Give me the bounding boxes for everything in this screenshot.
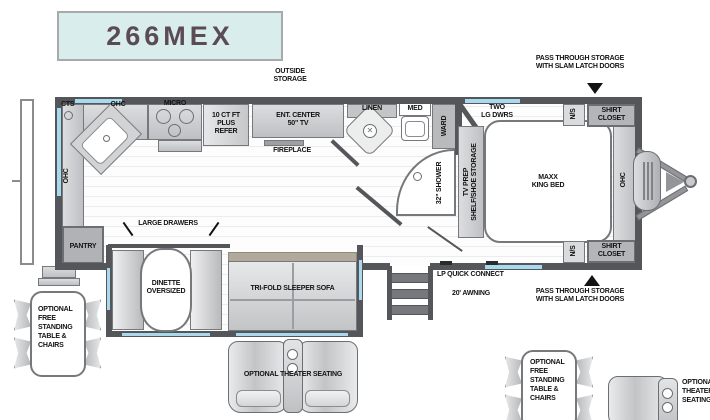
window-bedroom-top [465,99,520,103]
cts-icon [64,111,73,120]
pass-through-bottom-label: PASS THROUGH STORAGE WITH SLAM LATCH DOO… [524,288,636,304]
theater-label: OPTIONAL THEATER SEATING [228,371,358,379]
step-tread [391,305,429,315]
burner-icon [168,124,181,137]
tank-line [643,162,645,200]
fireplace-label: FIREPLACE [258,147,326,155]
kitchen-faucet [103,135,110,142]
entry-steps [387,266,433,320]
step-tread [391,289,429,299]
dinette-bench-right [190,250,222,330]
window-slideout-bottom-1 [122,333,210,336]
ent-center-label: ENT. CENTER 50" TV [254,112,342,128]
lp-quick-connect-label: LP QUICK CONNECT [437,271,517,279]
wall-top [55,97,642,104]
burner-icon [156,109,171,124]
sofa-cushion-divider [292,263,294,329]
pantry-label: PANTRY [62,243,104,251]
wall-bottom-mid [358,263,390,270]
theater-seat-cushion [236,390,281,407]
rear-bumper-mark [12,180,21,182]
hitch-ball-icon [684,175,697,188]
theater-console-2 [658,378,678,420]
outside-storage-label: OUTSIDE STORAGE [245,68,335,84]
toilet-flush-icon: ✕ [363,124,377,138]
window-slideout-bottom-2 [236,333,348,336]
ohc-side-label: OHC [63,156,71,196]
bath-sink [401,116,429,141]
ns-top-label: N/S [570,104,578,124]
window-slideout-left [107,268,110,310]
theater-seat-cushion [305,390,350,407]
pass-through-top-label: PASS THROUGH STORAGE WITH SLAM LATCH DOO… [524,55,636,71]
pass-through-arrow-top-icon [587,83,603,94]
cupholder-icon [662,388,673,399]
rear-step-lower [38,278,80,286]
sofa-seat-line [230,299,355,301]
cupholder-icon [287,349,298,360]
shower-label: 32" SHOWER [436,156,444,210]
chair-icon [14,337,31,369]
ward-label: WARD [441,106,449,146]
burner-icon [179,109,194,124]
cupholder-icon [662,402,673,413]
tv-prep-label: TV PREP SHELF/SHOE STORAGE [463,130,479,234]
window-rear [57,108,61,196]
chair-icon [14,299,31,331]
chair-icon [576,394,593,420]
awning-label: 20' AWNING [442,290,500,298]
window-slideout-right [359,260,362,300]
dinette-label: DINETTE OVERSIZED [138,280,194,296]
model-title: 266MEX [57,11,283,61]
tank-line [647,162,649,200]
awning-bracket [440,261,452,265]
ohc-top-label: OHC [96,101,140,109]
floorplan-266mex: 266MEX ✕ [0,0,710,420]
tank-line [651,162,653,200]
ns-bottom-label: N/S [570,241,578,261]
propane-tank [633,151,661,211]
rear-bumper [20,99,34,265]
table-chairs-2-label: OPTIONAL FREE STANDING TABLE & CHAIRS [530,358,578,403]
wall-bottom-left [55,263,112,270]
shirt-closet-top-label: SHIRT CLOSET [588,107,635,123]
shower-drain-icon [413,172,422,181]
bed-ohc-label: OHC [620,160,628,200]
bath-sink-basin [405,121,425,137]
hitch-coupler [666,172,684,192]
fireplace-unit [264,140,304,146]
chair-icon [576,356,593,388]
sofa-label: TRI-FOLD SLEEPER SOFA [230,285,355,293]
large-drawers-label: LARGE DRAWERS [126,220,210,228]
oven-block [158,140,202,152]
cts-label: CTS [61,101,85,109]
chair-icon [84,337,101,369]
awning-bracket [486,261,498,265]
pass-through-arrow-bottom-icon [584,275,600,286]
two-lg-dwrs-label: TWO LG DWRS [468,104,526,120]
refer-label: 10 CT FT PLUS REFER [204,112,248,135]
table-chairs-label: OPTIONAL FREE STANDING TABLE & CHAIRS [38,305,86,350]
micro-label: MICRO [149,100,201,108]
theater-2-label: OPTIONAL THEATER SEATING [682,378,710,405]
linen-label: LINEN [348,105,396,113]
chair-icon [505,356,522,388]
step-tread [391,273,429,283]
king-bed-label: MAXX KING BED [488,174,608,190]
chair-icon [505,394,522,420]
med-label: MED [399,105,431,113]
shirt-closet-bottom-label: SHIRT CLOSET [588,243,635,259]
chair-icon [84,299,101,331]
window-bedroom-bottom [485,265,542,269]
